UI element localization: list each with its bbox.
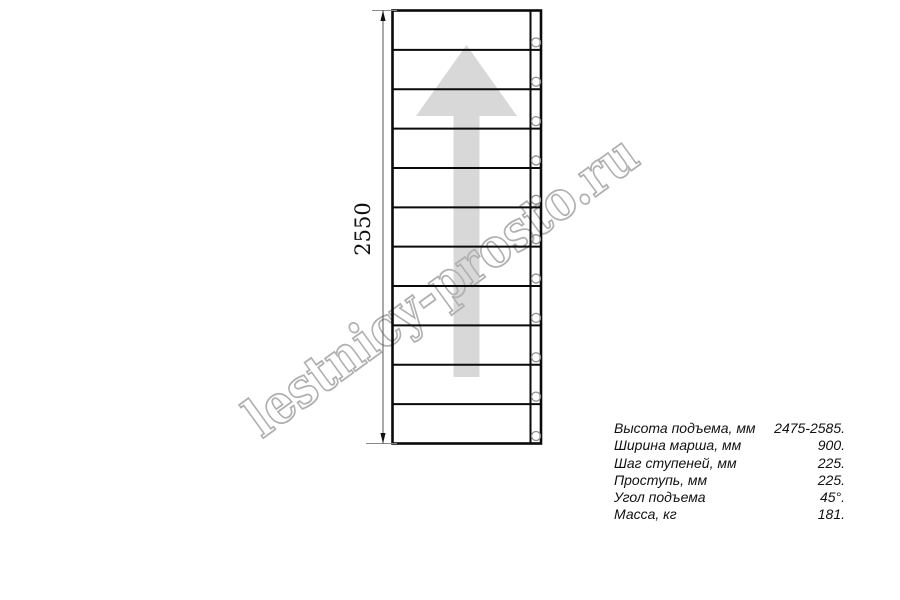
bolt-circle — [532, 274, 541, 283]
spec-value: 225. — [818, 472, 845, 489]
bolt-circle — [532, 353, 541, 362]
spec-value: 45°. — [820, 489, 845, 506]
dimension-arrow-up-icon — [380, 11, 385, 22]
spec-label: Проступь, мм — [614, 472, 707, 489]
spec-label: Масса, кг — [614, 506, 677, 523]
spec-value: 2475-2585. — [774, 420, 845, 437]
spec-row: Высота подъема, мм 2475-2585. — [614, 420, 845, 437]
spec-label: Угол подъема — [614, 489, 706, 506]
bolt-circle — [532, 156, 541, 165]
spec-row: Масса, кг 181. — [614, 506, 845, 523]
spec-value: 181. — [818, 506, 845, 523]
spec-label: Высота подъема, мм — [614, 420, 756, 437]
stair-drawing-page: lestnicy-prosto.ru 2550 Высота подъема, … — [0, 0, 900, 600]
spec-row: Угол подъема 45°. — [614, 489, 845, 506]
bolt-circle — [532, 77, 541, 86]
spec-label: Ширина марша, мм — [614, 437, 741, 454]
spec-row: Ширина марша, мм 900. — [614, 437, 845, 454]
bolt-circle — [532, 38, 541, 47]
bolt-circle — [532, 313, 541, 322]
bolt-circle — [532, 117, 541, 126]
spec-table: Высота подъема, мм 2475-2585. Ширина мар… — [614, 420, 845, 524]
spec-row: Проступь, мм 225. — [614, 472, 845, 489]
dimension-value: 2550 — [351, 202, 375, 255]
spec-value: 900. — [818, 437, 845, 454]
spec-value: 225. — [818, 455, 845, 472]
bolt-circle — [532, 432, 541, 441]
spec-row: Шаг ступеней, мм 225. — [614, 455, 845, 472]
dimension-arrow-down-icon — [380, 433, 385, 444]
spec-label: Шаг ступеней, мм — [614, 455, 737, 472]
bolt-circle — [532, 392, 541, 401]
